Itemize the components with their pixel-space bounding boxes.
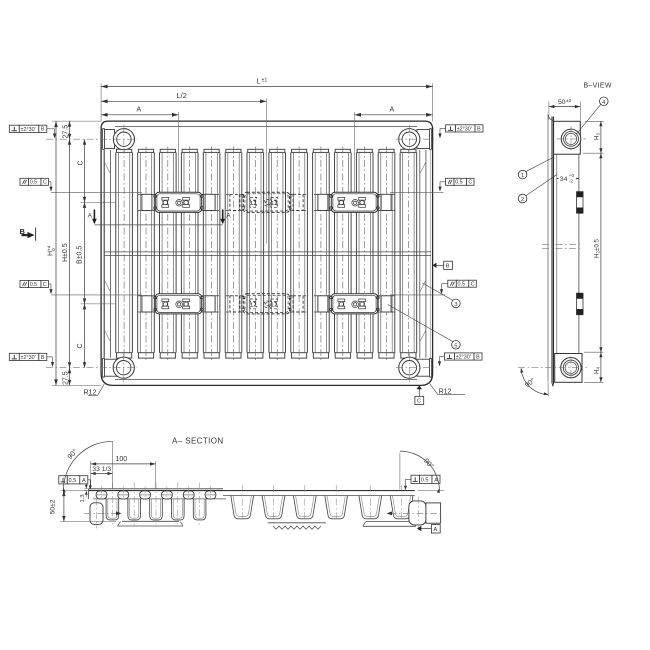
svg-text:0.5: 0.5 <box>458 282 466 288</box>
svg-text:A: A <box>88 213 93 220</box>
svg-text:33 1/3: 33 1/3 <box>92 466 111 473</box>
svg-text:27.5: 27.5 <box>63 125 70 139</box>
svg-text:B: B <box>476 354 480 360</box>
svg-text:±2°30': ±2°30' <box>21 355 36 361</box>
svg-text:H3: H3 <box>594 133 601 140</box>
svg-text:C: C <box>43 282 47 288</box>
svg-text:C: C <box>77 343 84 348</box>
svg-text:±2°30': ±2°30' <box>456 355 471 361</box>
svg-text:C: C <box>468 180 472 186</box>
svg-text:H2±0.5: H2±0.5 <box>594 239 601 258</box>
svg-text:0.5: 0.5 <box>69 478 77 484</box>
svg-text:A: A <box>226 213 231 220</box>
svg-text:C: C <box>417 399 421 405</box>
svg-text:±2°30': ±2°30' <box>457 126 472 132</box>
svg-text:C: C <box>78 160 85 165</box>
svg-text:50: 50 <box>558 99 566 106</box>
svg-text:90°: 90° <box>523 377 536 390</box>
svg-text:27.5: 27.5 <box>63 371 70 385</box>
svg-text:B–VIEW: B–VIEW <box>584 83 612 90</box>
svg-text:0.5: 0.5 <box>455 180 463 186</box>
svg-text:H4: H4 <box>594 367 601 374</box>
svg-text:-2: -2 <box>569 178 574 183</box>
svg-text:100: 100 <box>116 456 128 463</box>
svg-text:C: C <box>43 180 47 186</box>
svg-text:0.5: 0.5 <box>30 180 38 186</box>
svg-text:A: A <box>434 527 438 533</box>
svg-text:A: A <box>390 107 395 114</box>
svg-text:B±0.5: B±0.5 <box>77 246 84 264</box>
svg-text:R12: R12 <box>439 388 452 395</box>
svg-text:±1: ±1 <box>262 78 268 84</box>
svg-text:50±2: 50±2 <box>50 499 57 514</box>
svg-text:±2: ±2 <box>566 98 572 104</box>
svg-text:A– SECTION: A– SECTION <box>172 436 224 445</box>
svg-text:5: 5 <box>454 343 457 349</box>
svg-text:34: 34 <box>560 176 568 183</box>
svg-text:0.5: 0.5 <box>30 282 38 288</box>
svg-text:B: B <box>41 355 45 361</box>
svg-text:1.3: 1.3 <box>80 494 86 502</box>
svg-text:A: A <box>82 478 86 484</box>
svg-text:0.5: 0.5 <box>421 478 429 484</box>
svg-text:B: B <box>477 126 481 132</box>
svg-text:H+40: H+40 <box>46 245 56 256</box>
svg-text:L: L <box>257 77 261 86</box>
svg-text:90°: 90° <box>66 447 79 460</box>
svg-text:3: 3 <box>454 302 457 308</box>
svg-text:B: B <box>41 127 45 133</box>
svg-text:H±0.5: H±0.5 <box>62 243 69 262</box>
svg-text:B: B <box>446 264 450 270</box>
svg-text:A: A <box>137 107 142 114</box>
svg-text:2: 2 <box>521 197 524 203</box>
svg-text:C: C <box>471 282 475 288</box>
svg-text:L/2: L/2 <box>177 91 187 100</box>
svg-text:±2°30': ±2°30' <box>21 127 36 133</box>
svg-text:1: 1 <box>521 173 524 179</box>
